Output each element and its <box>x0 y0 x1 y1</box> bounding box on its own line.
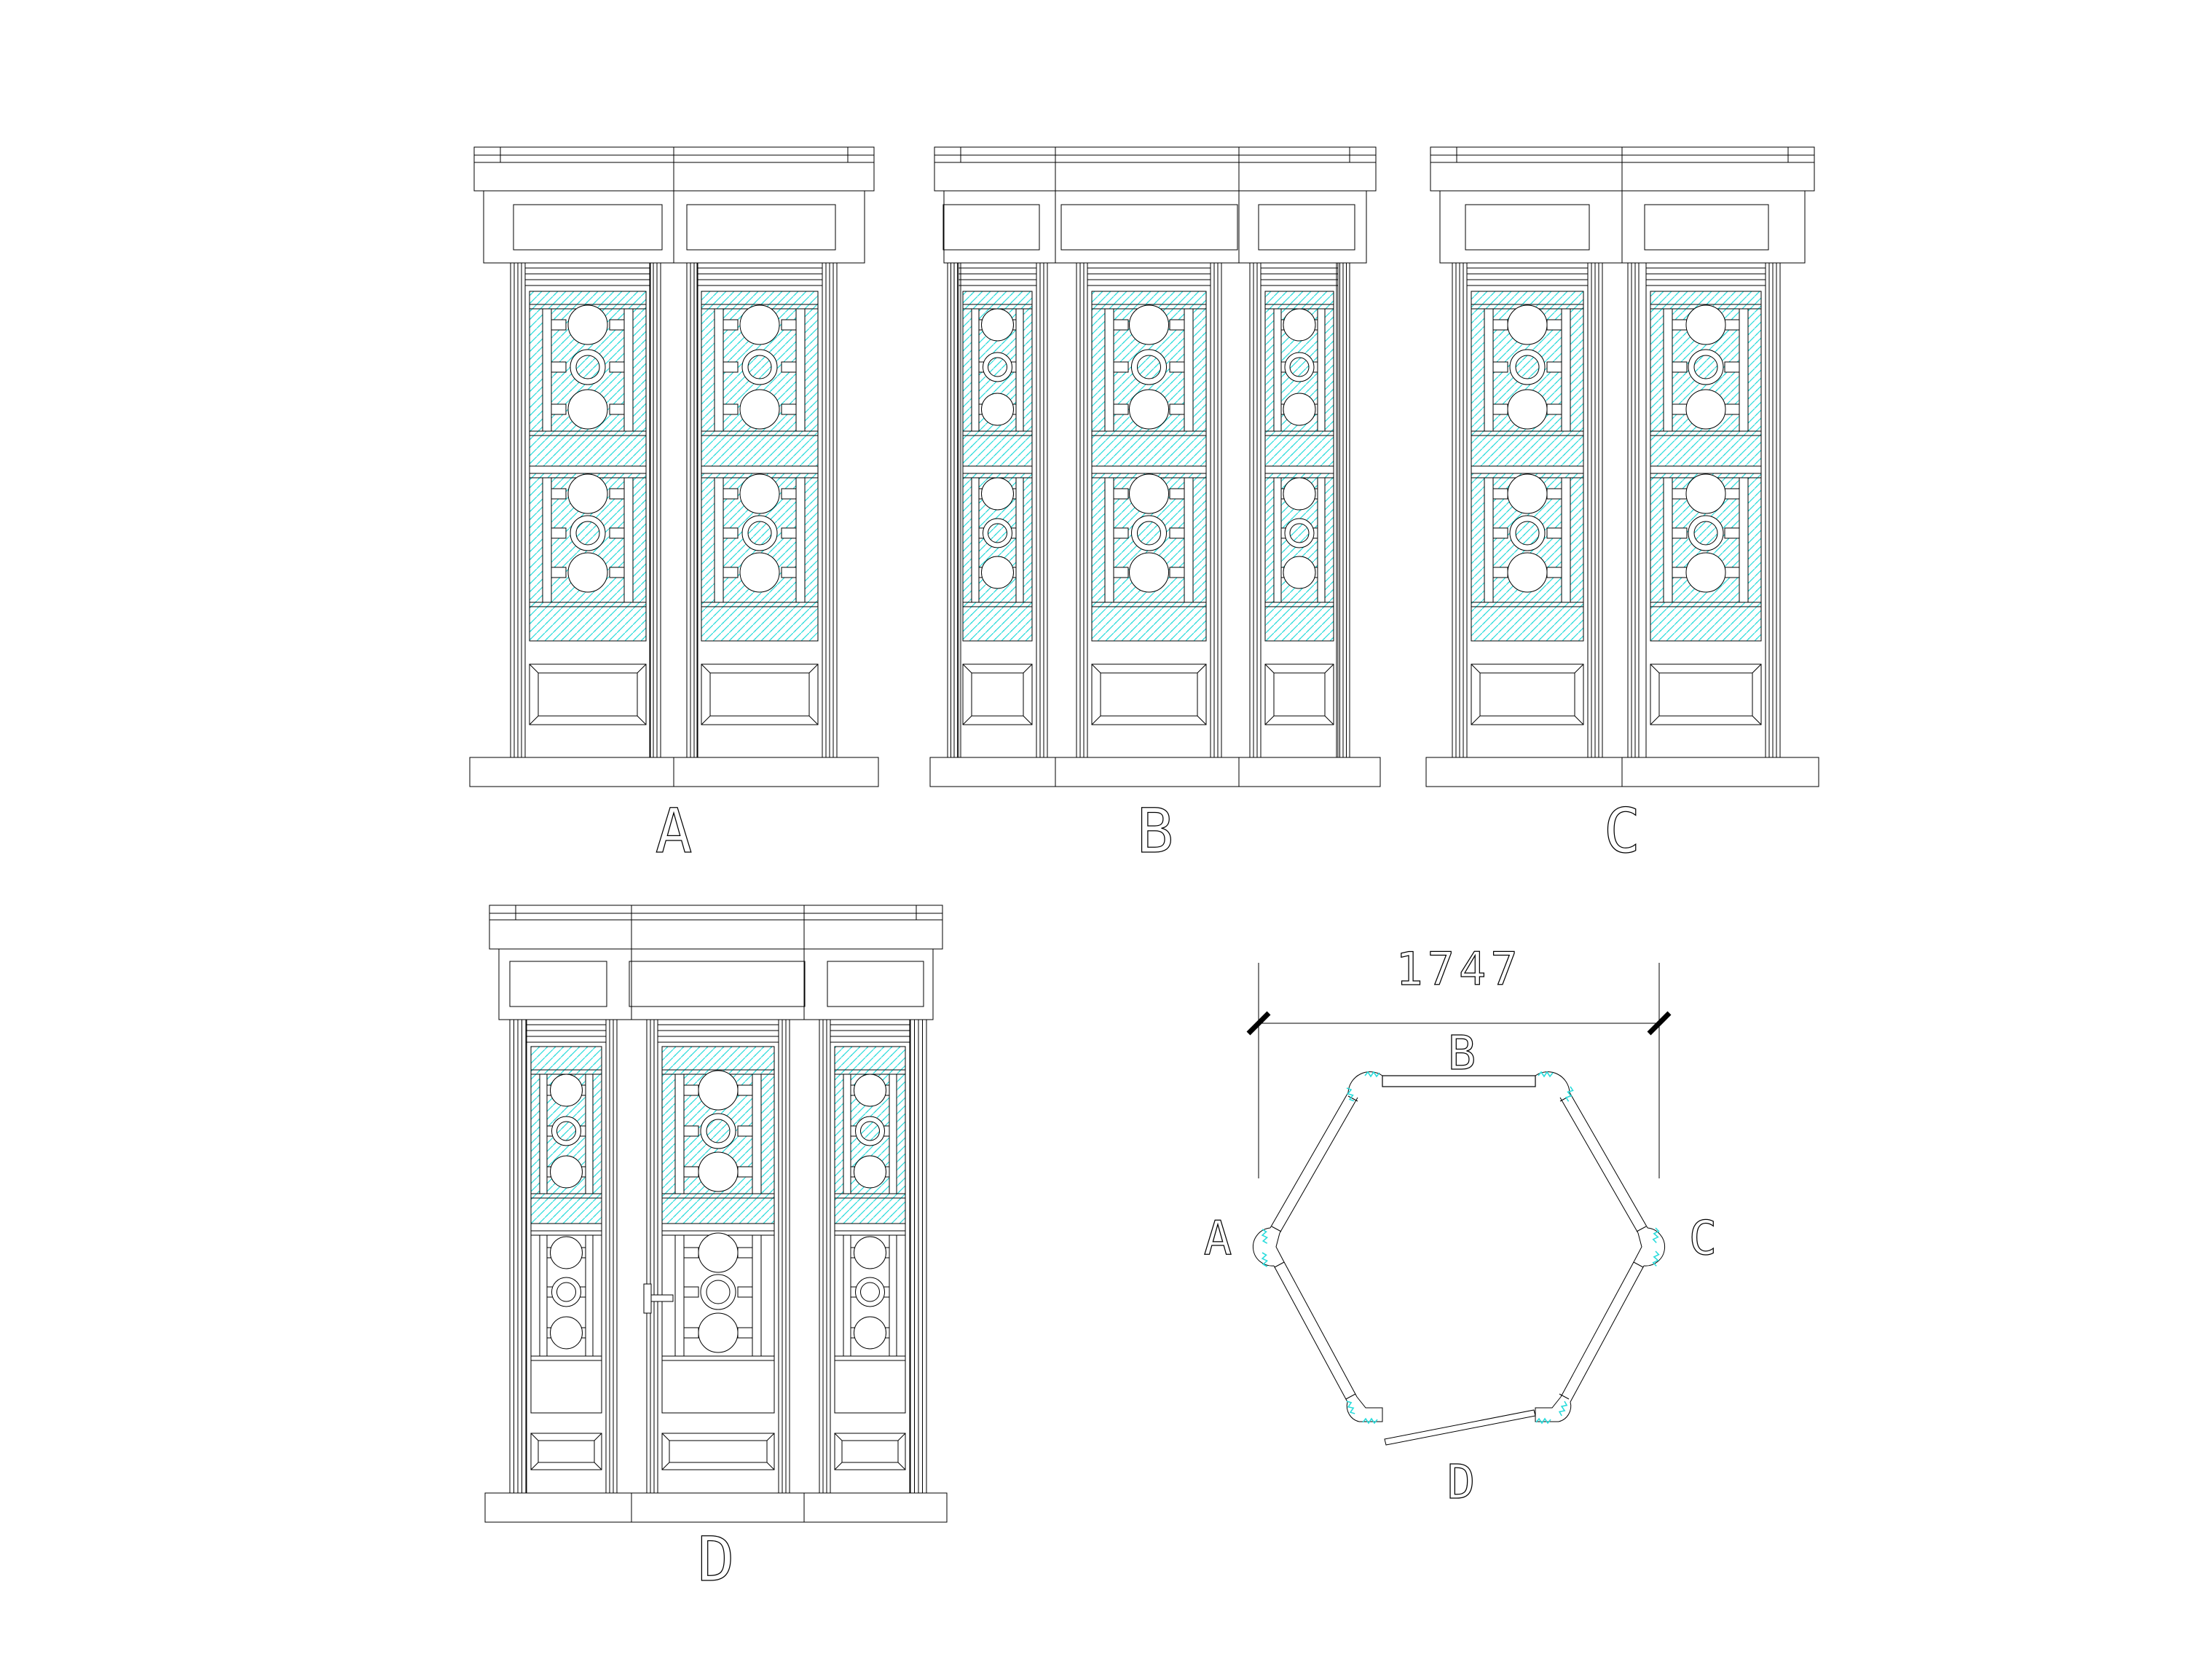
elevation-d-label: D <box>698 1524 735 1595</box>
plan-label-right: C <box>1689 1212 1717 1266</box>
cad-drawing-canvas: A B C D 1747 B A C D <box>0 0 2212 1678</box>
plan-walls <box>1253 1072 1664 1422</box>
plan-label-bottom: D <box>1447 1456 1476 1510</box>
plan-dimension-text: 1747 <box>1396 942 1522 996</box>
elevation-d-drawing <box>485 905 947 1522</box>
elevation-a-drawing <box>470 147 878 787</box>
cad-drawing-page: A B C D 1747 B A C D <box>0 0 2212 1678</box>
plan-break-marks <box>1262 1072 1659 1423</box>
elevation-b-label: B <box>1137 795 1174 867</box>
plan-label-left: A <box>1204 1212 1232 1266</box>
plan-label-top: B <box>1448 1027 1476 1081</box>
elevation-b-drawing <box>930 147 1380 787</box>
elevation-c-label: C <box>1604 795 1641 867</box>
elevation-c-drawing <box>1426 147 1819 787</box>
plan-door-leaf-open <box>1385 1410 1535 1445</box>
elevation-a-label: A <box>656 795 693 867</box>
